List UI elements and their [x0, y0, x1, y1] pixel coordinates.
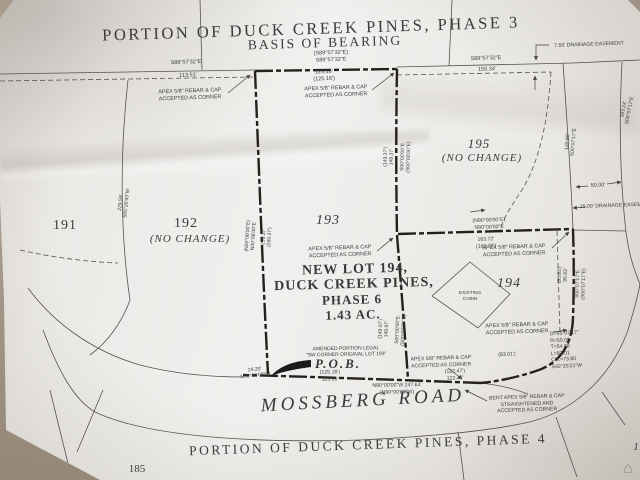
dim-n194-16372-line: (163.72'): [476, 243, 497, 250]
rot-e194-brg-line: (S00°07'17"E): [580, 268, 587, 300]
pob-arrow: [271, 360, 311, 376]
lot-193: 193: [316, 213, 340, 229]
amended-note: AMENDED PORTION LEGAL"SW CORNER ORIGINAL…: [306, 345, 387, 359]
lot-195-note: (NO CHANGE): [442, 152, 522, 164]
dim-15034-line: 150.34': [478, 66, 496, 73]
dim-north-12516-line: (125.16'): [313, 76, 335, 84]
curve-l-record: (83.01'): [498, 351, 516, 358]
dim-north-12516: 125.16'(125.16'): [313, 69, 335, 83]
cabin-label-line: CABIN: [459, 297, 481, 303]
dim-5000: 50.00': [591, 182, 606, 190]
curve-l-record-line: (83.01'): [498, 351, 516, 358]
curve-data: D=95°07'17"R=50.00T=54.68L=83.01CH.=73.8…: [550, 330, 583, 371]
lot-195: 195: [468, 136, 491, 152]
lot-185: 185: [129, 463, 146, 475]
rot-e193-lower-dist: (149.97')149.97': [377, 319, 391, 339]
rot-e193-upper-brg-line: (S00°00'00"E): [405, 141, 412, 173]
lot-191: 191: [53, 218, 77, 234]
cabin-label: EXISTINGCABIN: [459, 291, 481, 303]
dim-15034: 150.34': [478, 66, 496, 73]
apex-corner-nw: APEX 5/8" REBAR & CAPACCEPTED AS CORNER: [158, 87, 221, 103]
dim-road-24763: N90°00'00"W 247.63'(N90°00'00"W): [372, 382, 421, 396]
bearing-basis-east: S89°57'32"E: [470, 55, 501, 63]
lot-192: 192: [174, 216, 198, 232]
apex-corner-se194: APEX 5/8" REBAR & CAPACCEPTED AS CORNER: [485, 321, 548, 337]
apex-corner-mid: APEX 5/8" REBAR & CAPACCEPTED AS CORNER: [308, 244, 371, 260]
lot-194: 194: [497, 276, 521, 292]
dim-5000-line: 50.00': [591, 182, 606, 190]
rot-west-dist: 299.37'(299.37'): [260, 227, 274, 247]
apex-corner-north: APEX 5/8" REBAR & CAPACCEPTED AS CORNER: [304, 84, 367, 100]
plat-paper: PORTION OF DUCK CREEK PINES, PHASE 3 BAS…: [0, 0, 640, 480]
bearing-basis-center: (S89°57'32"E)S89°57'32"E: [313, 50, 348, 65]
rot-e193-upper-dist-line: 149.37': [389, 147, 396, 167]
dim-12247: (122.47')122.47': [445, 368, 466, 382]
bearing-n194: (N90°00'00"E)N90°00'00"E: [472, 217, 505, 231]
rot-e193-upper-dist: (149.37')149.37': [382, 147, 395, 167]
photo-watermark-icon: ⌂: [623, 460, 633, 478]
plat-photo: PORTION OF DUCK CREEK PINES, PHASE 3 BAS…: [0, 0, 640, 480]
bearing-basis-east-line: S89°57'32"E: [470, 55, 501, 63]
dim-11351: 113.51': [179, 72, 197, 79]
dim-12247-line: 122.47': [445, 375, 466, 382]
dim-pob-12516-line: (125.16'): [320, 369, 340, 376]
rot-e193-upper-brg: S00°00'00"E(S00°00'00"E): [399, 141, 413, 173]
dim-11351-line: 113.51': [179, 72, 197, 79]
rot-e194-brg: S00°07'17"E(S00°07'17"E): [574, 268, 588, 300]
dim-pob-12516-line: 125.16': [320, 376, 340, 383]
dim-n194-16372: 163.72'(163.72'): [476, 236, 497, 250]
rot-e194-dist-line: 95.83': [563, 267, 570, 284]
rot-e193-lower-dist-line: 149.97': [383, 319, 390, 339]
rot-e194-dist: (95.83')95.83': [556, 266, 569, 283]
lot-partial: 1: [633, 441, 639, 453]
parcel-title-4: 1.43 AC.: [325, 306, 381, 323]
apex-bent-note: BENT APEX 5/8" REBAR & CAPSTRAIGHTENED A…: [489, 393, 565, 415]
dim-road-24763-line: (N90°00'00"W): [372, 389, 421, 396]
bearing-basis-center-line: S89°57'32"E: [314, 56, 349, 64]
rot-row-west: 149.88'S00°07'17"E: [564, 127, 579, 156]
bearing-basis-west-line: S89°57'32"E: [170, 59, 201, 67]
bearing-basis-west: S89°57'32"E: [170, 59, 201, 67]
rot-west-brg: (N00°08'00"E)N00°08'00"E: [244, 220, 259, 252]
rot-e193-lower-brg: S00°00'00"E(S00°00'00"E): [394, 314, 408, 346]
lot-192-note: (NO CHANGE): [150, 233, 230, 245]
dim-pob-12516: (125.16')125.16': [320, 369, 341, 382]
bearing-n194-line: N90°00'00"E: [473, 223, 506, 231]
